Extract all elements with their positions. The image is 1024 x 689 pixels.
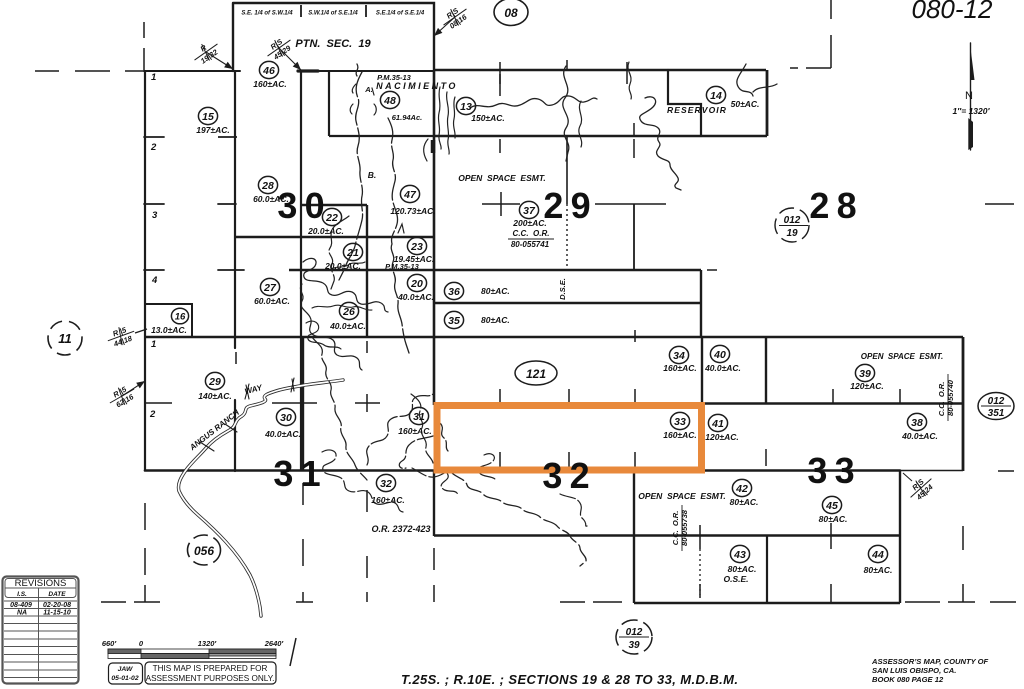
svg-text:44: 44 xyxy=(871,549,884,561)
svg-text:120.73±AC.: 120.73±AC. xyxy=(390,206,435,216)
svg-text:012: 012 xyxy=(988,396,1005,407)
svg-text:80-055741: 80-055741 xyxy=(511,240,550,249)
svg-text:197±AC.: 197±AC. xyxy=(196,125,230,135)
svg-text:46: 46 xyxy=(262,65,275,77)
svg-text:23: 23 xyxy=(410,241,423,253)
svg-text:3: 3 xyxy=(152,210,158,221)
svg-text:41: 41 xyxy=(711,418,724,430)
svg-text:37: 37 xyxy=(523,205,536,217)
svg-text:2: 2 xyxy=(150,142,157,153)
svg-text:1320′: 1320′ xyxy=(198,639,218,648)
svg-text:13: 13 xyxy=(460,101,472,113)
svg-text:2640′: 2640′ xyxy=(264,639,285,648)
svg-text:056: 056 xyxy=(194,544,214,558)
svg-text:160±AC.: 160±AC. xyxy=(663,430,697,440)
svg-text:T.25S. ; R.10E. ; SECTIONS: T.25S. ; R.10E. ; SECTIONS 19 & 28 TO 33… xyxy=(401,672,738,687)
svg-text:40.0±AC.: 40.0±AC. xyxy=(329,321,366,331)
svg-text:40.0±AC.: 40.0±AC. xyxy=(901,431,938,441)
svg-text:30: 30 xyxy=(280,412,292,424)
svg-text:OPEN SPACE ESMT.: OPEN SPACE ESMT. xyxy=(638,491,726,501)
svg-text:80-055740: 80-055740 xyxy=(946,379,955,416)
svg-text:B.: B. xyxy=(368,170,377,180)
svg-text:351: 351 xyxy=(988,408,1005,419)
svg-text:3 3: 3 3 xyxy=(807,450,854,491)
svg-text:50±AC.: 50±AC. xyxy=(731,99,760,109)
svg-text:13.0±AC.: 13.0±AC. xyxy=(151,325,187,335)
svg-text:48: 48 xyxy=(383,95,396,107)
svg-text:31: 31 xyxy=(413,411,425,423)
svg-text:3 0: 3 0 xyxy=(277,185,324,226)
svg-text:121: 121 xyxy=(526,367,546,381)
svg-text:38: 38 xyxy=(911,417,923,429)
svg-text:S.E.1/4 of S.E.1/4: S.E.1/4 of S.E.1/4 xyxy=(376,11,425,17)
svg-text:11: 11 xyxy=(58,331,72,346)
svg-text:ASSESSOR’S MAP, COUNTY OF: ASSESSOR’S MAP, COUNTY OF xyxy=(871,657,989,666)
svg-text:O.S.E.: O.S.E. xyxy=(723,574,748,584)
svg-text:61.94Ac.: 61.94Ac. xyxy=(392,113,422,122)
svg-text:2 8: 2 8 xyxy=(809,185,856,226)
svg-text:29: 29 xyxy=(208,376,221,388)
svg-text:27: 27 xyxy=(263,282,277,294)
svg-text:PTN. SEC. 19: PTN. SEC. 19 xyxy=(295,38,371,50)
svg-text:34: 34 xyxy=(673,350,685,362)
svg-text:32: 32 xyxy=(380,478,392,490)
svg-text:42: 42 xyxy=(735,483,748,495)
svg-text:43: 43 xyxy=(733,549,746,561)
svg-text:40.0±AC.: 40.0±AC. xyxy=(397,292,434,302)
svg-text:47: 47 xyxy=(403,189,417,201)
svg-text:80±AC.: 80±AC. xyxy=(819,514,848,524)
svg-text:160±AC.: 160±AC. xyxy=(371,495,405,505)
svg-text:200±AC.: 200±AC. xyxy=(512,218,547,228)
svg-text:2: 2 xyxy=(149,409,156,420)
svg-text:S.W.1/4 of S.E.1/4: S.W.1/4 of S.E.1/4 xyxy=(308,11,358,17)
svg-text:I.S.: I.S. xyxy=(17,591,27,598)
svg-text:20: 20 xyxy=(410,278,423,290)
svg-text:60.0±AC.: 60.0±AC. xyxy=(253,194,289,204)
svg-text:40.0±AC.: 40.0±AC. xyxy=(264,429,301,439)
svg-text:4: 4 xyxy=(151,275,158,286)
svg-text:2 9: 2 9 xyxy=(543,185,590,226)
svg-text:140±AC.: 140±AC. xyxy=(198,391,232,401)
svg-text:080-12: 080-12 xyxy=(912,0,993,24)
svg-text:36: 36 xyxy=(448,286,460,298)
svg-text:19: 19 xyxy=(786,228,798,239)
svg-text:16: 16 xyxy=(175,311,186,322)
svg-text:26: 26 xyxy=(342,306,355,318)
svg-text:160±AC.: 160±AC. xyxy=(663,363,697,373)
svg-text:C.C. O.R.: C.C. O.R. xyxy=(937,382,946,417)
svg-text:15: 15 xyxy=(202,111,214,123)
svg-text:160±AC.: 160±AC. xyxy=(253,79,287,89)
svg-text:660′: 660′ xyxy=(102,639,118,648)
svg-text:012: 012 xyxy=(784,215,801,226)
svg-text:O.R. 2372-423: O.R. 2372-423 xyxy=(371,524,430,534)
svg-text:80-055738: 80-055738 xyxy=(680,509,689,546)
svg-text:RESERVOIR: RESERVOIR xyxy=(667,105,727,115)
svg-text:02-20-08: 02-20-08 xyxy=(43,602,71,609)
svg-text:S.E. 1/4 of S.W.1/4: S.E. 1/4 of S.W.1/4 xyxy=(241,11,293,17)
svg-text:P.M.35-13: P.M.35-13 xyxy=(385,262,419,271)
svg-text:35: 35 xyxy=(448,315,460,327)
svg-text:28: 28 xyxy=(261,180,274,192)
svg-text:80±AC.: 80±AC. xyxy=(481,286,510,296)
svg-text:80±AC.: 80±AC. xyxy=(481,315,510,325)
svg-text:JAW: JAW xyxy=(118,666,133,673)
svg-text:20.0±AC.: 20.0±AC. xyxy=(324,261,361,271)
svg-text:3 2: 3 2 xyxy=(542,455,589,496)
svg-text:60.0±AC.: 60.0±AC. xyxy=(254,296,290,306)
svg-text:A.: A. xyxy=(364,85,373,94)
svg-text:DATE: DATE xyxy=(48,591,66,598)
svg-text:21: 21 xyxy=(346,247,359,259)
svg-text:39: 39 xyxy=(628,640,640,651)
svg-text:08: 08 xyxy=(504,6,518,20)
svg-text:BOOK 080 PAGE 12: BOOK 080 PAGE 12 xyxy=(872,675,944,684)
svg-text:33: 33 xyxy=(674,416,686,428)
svg-text:1: 1 xyxy=(151,339,156,350)
svg-text:N: N xyxy=(965,90,973,102)
svg-text:14: 14 xyxy=(710,90,722,102)
svg-text:SAN LUIS OBISPO, CA.: SAN LUIS OBISPO, CA. xyxy=(872,666,956,675)
svg-text:80±AC.: 80±AC. xyxy=(728,564,757,574)
svg-text:REVISIONS: REVISIONS xyxy=(15,578,67,589)
svg-text:C.C. O.R.: C.C. O.R. xyxy=(513,229,550,238)
svg-text:45: 45 xyxy=(825,500,838,512)
svg-text:120±AC.: 120±AC. xyxy=(705,432,739,442)
svg-text:OPEN SPACE ESMT.: OPEN SPACE ESMT. xyxy=(458,173,546,183)
svg-text:C.C. O.R.: C.C. O.R. xyxy=(671,511,680,546)
svg-text:40: 40 xyxy=(713,349,726,361)
svg-text:NACIMIENTO: NACIMIENTO xyxy=(376,81,458,91)
svg-text:THIS MAP IS PREPARED FOR: THIS MAP IS PREPARED FOR xyxy=(153,664,268,673)
svg-text:ASSESSMENT PURPOSES ONLY.: ASSESSMENT PURPOSES ONLY. xyxy=(146,674,275,683)
svg-text:1: 1 xyxy=(151,72,156,83)
svg-text:39: 39 xyxy=(859,368,871,380)
svg-text:20.0±AC.: 20.0±AC. xyxy=(307,226,344,236)
svg-text:1″= 1320′: 1″= 1320′ xyxy=(952,106,990,116)
svg-text:3 1: 3 1 xyxy=(273,453,320,494)
svg-text:80±AC.: 80±AC. xyxy=(864,565,893,575)
svg-text:08-409: 08-409 xyxy=(10,602,32,609)
svg-text:22: 22 xyxy=(325,212,338,224)
svg-text:11-15-10: 11-15-10 xyxy=(43,610,71,617)
svg-text:120±AC.: 120±AC. xyxy=(850,381,884,391)
svg-text:012: 012 xyxy=(626,627,643,638)
svg-text:OPEN SPACE ESMT.: OPEN SPACE ESMT. xyxy=(861,352,943,361)
svg-text:D.S.E.: D.S.E. xyxy=(558,278,567,300)
svg-text:150±AC.: 150±AC. xyxy=(471,113,505,123)
svg-text:80±AC.: 80±AC. xyxy=(730,497,759,507)
svg-text:05-01-02: 05-01-02 xyxy=(111,675,138,682)
svg-text:NA: NA xyxy=(17,610,27,617)
svg-text:40.0±AC.: 40.0±AC. xyxy=(704,363,741,373)
svg-text:160±AC.: 160±AC. xyxy=(398,426,432,436)
